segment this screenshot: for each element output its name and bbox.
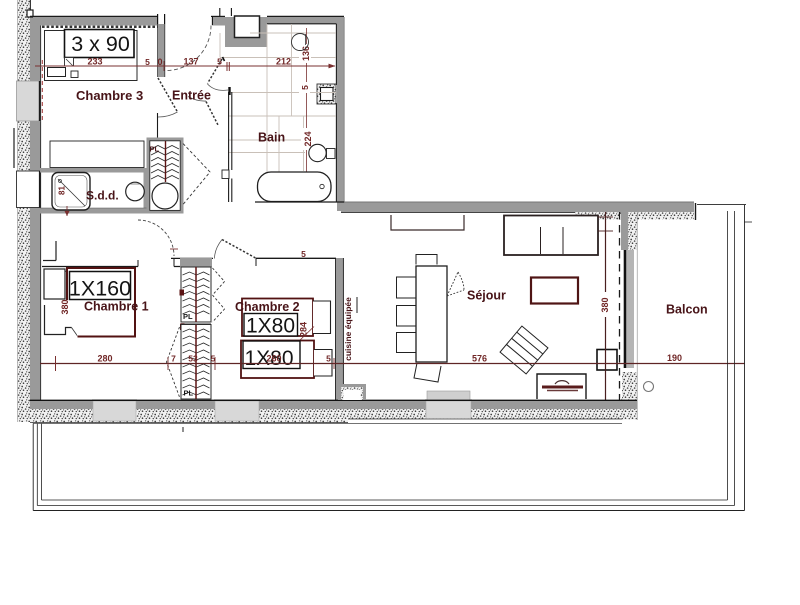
svg-text:Séjour: Séjour bbox=[467, 289, 506, 303]
svg-text:7: 7 bbox=[171, 354, 176, 364]
svg-text:PL: PL bbox=[150, 145, 160, 154]
svg-text:Entrée: Entrée bbox=[172, 89, 211, 103]
svg-text:5: 5 bbox=[326, 354, 331, 364]
svg-text:5: 5 bbox=[301, 249, 306, 259]
svg-text:Chambre 2: Chambre 2 bbox=[235, 300, 300, 314]
svg-text:0: 0 bbox=[157, 57, 162, 67]
svg-text:PL: PL bbox=[183, 312, 193, 321]
svg-text:5: 5 bbox=[300, 85, 310, 90]
svg-text:380: 380 bbox=[60, 299, 70, 314]
svg-text:Chambre 1: Chambre 1 bbox=[84, 300, 149, 314]
svg-text:212: 212 bbox=[276, 57, 291, 67]
svg-text:cuisine équipée: cuisine équipée bbox=[343, 297, 353, 361]
svg-text:284: 284 bbox=[299, 322, 309, 337]
svg-text:1X80: 1X80 bbox=[246, 315, 295, 338]
svg-text:Bain: Bain bbox=[258, 131, 285, 145]
svg-text:3 x 90: 3 x 90 bbox=[71, 32, 130, 56]
svg-text:PL: PL bbox=[184, 389, 194, 398]
svg-text:137: 137 bbox=[183, 57, 198, 67]
svg-text:S.d.d.: S.d.d. bbox=[86, 189, 119, 203]
svg-text:Balcon: Balcon bbox=[666, 303, 708, 317]
svg-text:224: 224 bbox=[303, 131, 313, 146]
svg-text:233: 233 bbox=[87, 57, 102, 67]
svg-text:380: 380 bbox=[600, 297, 610, 312]
svg-text:190: 190 bbox=[667, 353, 682, 363]
svg-text:5: 5 bbox=[217, 57, 222, 67]
svg-text:576: 576 bbox=[472, 354, 487, 364]
svg-text:5: 5 bbox=[211, 354, 216, 364]
svg-text:1X160: 1X160 bbox=[69, 277, 131, 301]
svg-text:5: 5 bbox=[145, 57, 150, 67]
svg-text:Chambre 3: Chambre 3 bbox=[76, 88, 143, 103]
svg-text:53: 53 bbox=[188, 354, 198, 364]
svg-text:81: 81 bbox=[58, 186, 67, 195]
svg-text:280: 280 bbox=[97, 354, 112, 364]
svg-text:260: 260 bbox=[266, 354, 281, 364]
